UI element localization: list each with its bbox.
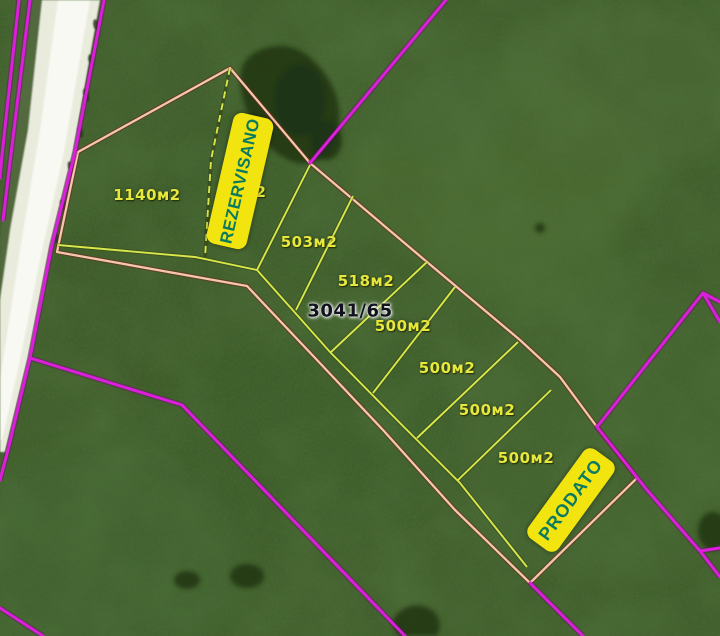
- satellite-map-view: 1140м2 2 503м2 518м2 500м2 500м2 500м2 5…: [0, 0, 720, 636]
- area-label-518: 518м2: [338, 272, 395, 290]
- area-label-500-2: 500м2: [419, 359, 476, 377]
- area-label-500-3: 500м2: [459, 401, 516, 419]
- area-label-500-4: 500м2: [498, 449, 555, 467]
- area-label-503: 503м2: [281, 233, 338, 251]
- parcel-number-label: 3041/65: [307, 301, 392, 322]
- area-label-1140: 1140м2: [113, 186, 180, 204]
